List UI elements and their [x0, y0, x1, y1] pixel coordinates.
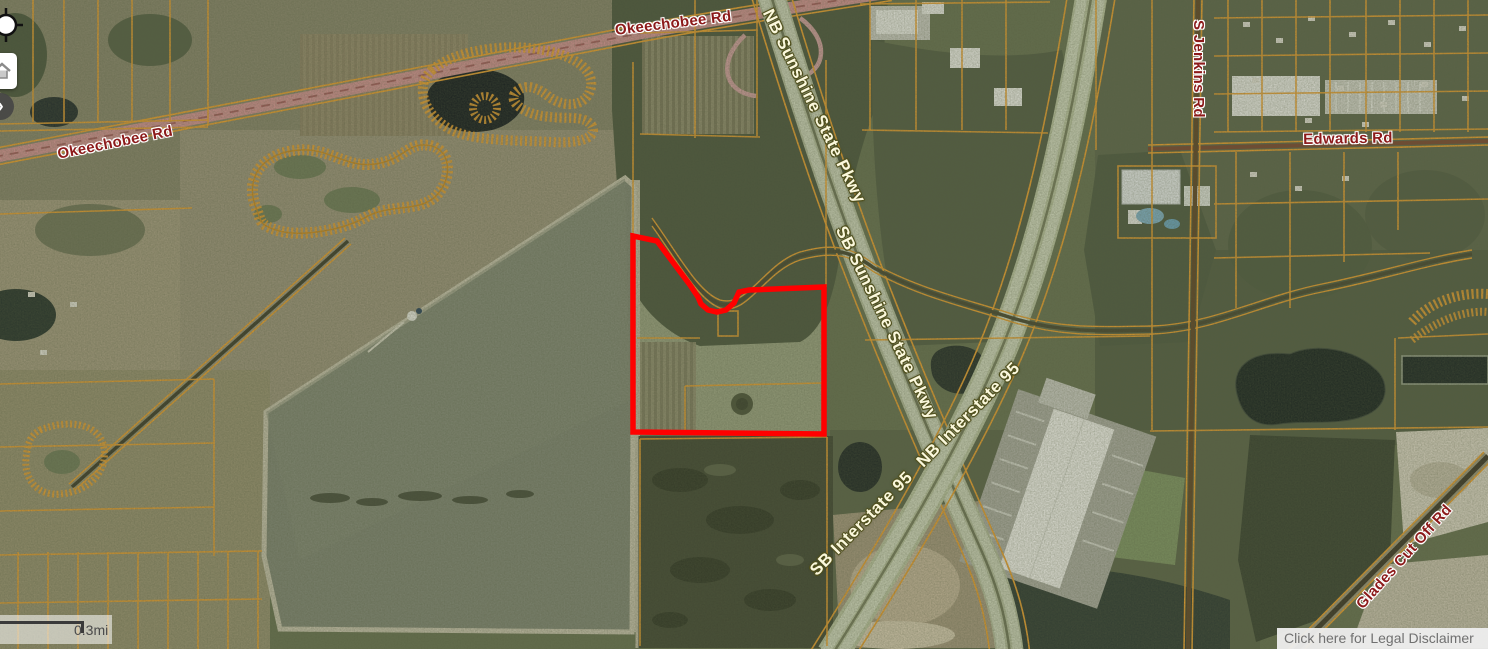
road-label-edwards: Edwards Rd — [1303, 129, 1393, 148]
map-viewport[interactable]: Okeechobee Rd Okeechobee Rd NB Sunshine … — [0, 0, 1488, 649]
scale-bar-label: 0.3mi — [74, 622, 108, 638]
home-button[interactable] — [0, 53, 17, 89]
texture-overlay — [0, 0, 1488, 649]
chevron-right-icon: › — [0, 97, 4, 116]
legal-disclaimer-link[interactable]: Click here for Legal Disclaimer — [1277, 628, 1488, 649]
home-icon — [0, 60, 13, 82]
road-label-s-jenkins: S Jenkins Rd — [1190, 20, 1207, 118]
crosshair-button[interactable] — [0, 8, 23, 42]
aerial-imagery — [0, 0, 1488, 649]
scale-bar-line — [0, 621, 83, 624]
crosshair-icon — [0, 8, 23, 42]
scale-bar: 0.3mi — [0, 615, 112, 644]
